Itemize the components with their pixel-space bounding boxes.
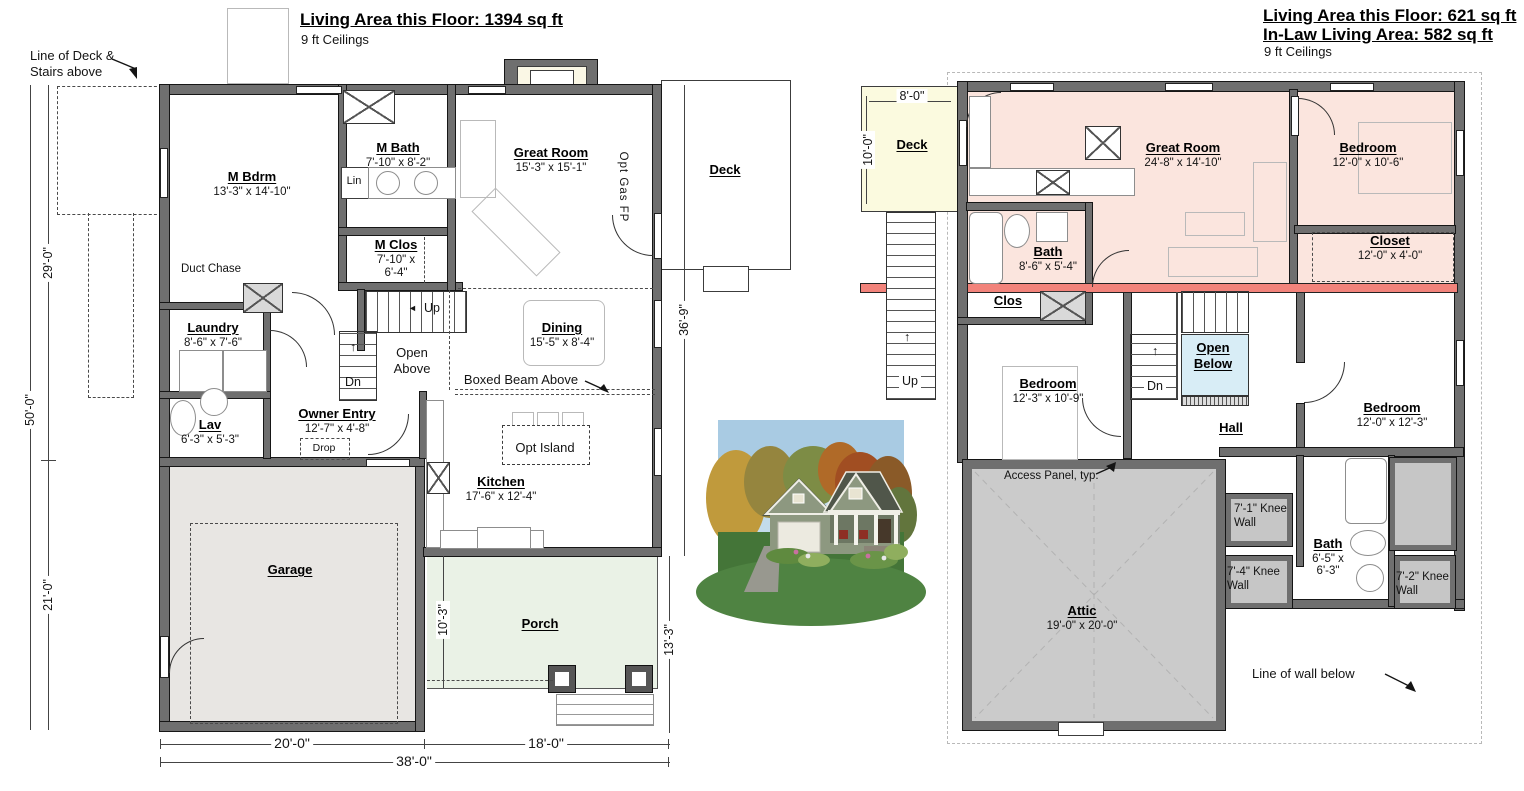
stairs-dn-run [339,331,377,401]
toilet [1350,530,1386,556]
deck-stairs-note: Line of Deck & [30,48,115,63]
toilet [170,400,196,436]
attic-roof-lines [975,472,1213,718]
deck2-label: Deck [896,138,927,152]
opt-island-label: Opt Island [515,441,574,455]
entry-door-gap [366,459,410,467]
stairs-up-label: Up [424,301,440,315]
dim-10: 10'-0" [861,131,875,169]
kitchen-dim: 17'-6" x 12'-4" [466,491,537,503]
owner-entry-dim: 12'-7" x 4'-8" [305,423,369,435]
wall [1297,292,1304,362]
wall [160,85,660,94]
chase-box [1040,291,1086,321]
wall [1086,203,1092,291]
wall [967,203,1092,210]
boxed-beam-line [455,389,655,390]
open-below-label: Open [1196,341,1229,355]
dim-tick [160,739,161,749]
dim-8: 8'-0" [897,89,928,103]
arrow-up-icon: ↑ [904,330,910,344]
stairs-run [1181,291,1249,333]
knee-wall-space [1390,458,1456,550]
bath2-label: Bath [1314,537,1343,551]
porch-steps [556,694,654,726]
sink-basin [376,171,400,195]
wall [1086,290,1092,324]
dining-label: Dining [542,321,582,335]
attic-dim: 19'-0" x 20'-0" [1047,620,1118,632]
attic-access-step [1058,722,1104,736]
sofa [1168,247,1258,277]
bedroom-se-label: Bedroom [1363,401,1420,415]
m-bdrm-label: M Bdrm [228,170,276,184]
m-bdrm-dim: 13'-3" x 14'-10" [213,186,290,198]
knee-wall-3-label: 7'-2" Knee [1396,571,1449,584]
m-clos-dim: 6'-4" [385,267,408,279]
garage-parking-outline [190,523,398,724]
wall [416,458,424,731]
dim-tick [424,739,425,749]
duct-chase-box [243,283,283,313]
leader-arrow-icon [112,55,144,83]
stair-wall-line [1176,292,1178,398]
great-room-dim: 15'-3" x 15'-1" [516,162,587,174]
laundry-dim: 8'-6" x 7'-6" [184,337,242,349]
porch-roof-line [427,680,553,681]
deck1-label: Deck [709,163,740,177]
great-room2-dim: 24'-8" x 14'-10" [1144,157,1221,169]
leader-arrow-icon [585,378,615,396]
m-clos-dim: 7'-10" x [377,254,415,266]
m-bath-dim: 7'-10" x 8'-2" [366,157,430,169]
wall [424,548,661,556]
washer [179,350,223,392]
boxed-beam-label: Boxed Beam Above [461,373,581,387]
door-arc [292,292,335,335]
dim-20: 20'-0" [271,736,313,750]
house-rendering-image [718,420,904,592]
dim-50: 50'-0" [23,391,37,429]
access-panel-note: Access Panel, typ. [1004,470,1099,483]
dryer [223,350,267,392]
closet-label: Closet [1370,234,1410,248]
bath1-label: Bath [1034,245,1063,259]
coffee-table [1185,212,1245,236]
leader-arrow-icon [1096,458,1124,478]
stairs-dn-label: Dn [1144,379,1166,393]
window [1010,83,1054,91]
deck-door-gap [654,213,662,259]
great-room-label: Great Room [514,146,588,160]
knee-wall-2-label: 7'-4" Knee [1227,566,1280,579]
bedroom-se-dim: 12'-0" x 12'-3" [1357,417,1428,429]
lav-dim: 6'-3" x 5'-3" [181,434,239,446]
window [296,86,342,94]
deck-above-outline [57,86,162,215]
floor2-inlaw-area-title: In-Law Living Area: 582 sq ft [1263,25,1493,45]
opt-gas-fp-label: Opt Gas FP [617,152,629,223]
m-clos-label: M Clos [375,238,418,252]
open-above-boundary [449,290,450,390]
deck-door-above [227,8,289,84]
dim-tick [41,460,56,461]
fireplace-insert [530,70,574,85]
range [427,462,450,494]
closet-dim: 12'-0" x 4'-0" [1358,250,1422,262]
great-room2-label: Great Room [1146,141,1220,155]
window [1456,340,1464,386]
boxed-beam-line [455,394,655,395]
media-cabinet [460,120,496,198]
deck1-step [703,266,749,292]
dim-line [160,744,670,745]
arrow-up-icon: ↑ [350,340,356,354]
floor1-living-area-title: Living Area this Floor: 1394 sq ft [300,10,563,30]
window [1456,130,1464,176]
toilet [1004,214,1030,248]
knee-wall-3-label: Wall [1396,585,1418,598]
linen-label: Lin [347,174,362,188]
bath2-dim: 6'-3" [1317,565,1340,577]
dim-tick [668,739,669,749]
drop-zone-label: Drop [313,441,336,455]
arrow-left-icon: ◄ [408,303,417,313]
bath-sink [1356,564,1384,592]
dim-21: 21'-0" [41,576,55,614]
bath2-dim: 6'-5" x [1312,553,1344,565]
range [1085,126,1121,160]
loveseat [1253,162,1287,242]
window [1165,83,1213,91]
m-bath-label: M Bath [376,141,419,155]
attic-label: Attic [1068,604,1097,618]
dim-tick [160,757,161,767]
bath1-dim: 8'-6" x 5'-4" [1019,261,1077,273]
stairs-dn-label: Dn [345,375,361,389]
window [654,428,662,476]
window [1330,83,1374,91]
floor2-living-area-title: Living Area this Floor: 621 sq ft [1263,6,1516,26]
duct-chase-label: Duct Chase [181,263,241,276]
dim-29: 29'-0" [41,244,55,282]
dining-dim: 15'-5" x 8'-4" [530,337,594,349]
wall [1297,456,1303,566]
bedroom-ne-label: Bedroom [1339,141,1396,155]
closet-rod-line [424,237,425,283]
window [654,300,662,348]
stairs-above-outline [88,213,134,398]
lav-sink [200,388,228,416]
bedroom-ne-dim: 12'-0" x 10'-6" [1333,157,1404,169]
railing [1181,396,1249,406]
beam-line [458,288,653,289]
kitchen-sink [477,527,531,549]
floor1-ceiling-note: 9 ft Ceilings [301,32,369,47]
porch-label: Porch [522,617,559,631]
leader-arrow-icon [1385,672,1425,698]
wall [339,283,462,290]
dim-10-3: 10'-3" [436,601,450,639]
floor2-ceiling-note: 9 ft Ceilings [1264,44,1332,59]
deck-stairs-note: Stairs above [30,64,102,79]
shower [343,90,395,124]
dim-36-9: 36'-9" [677,301,691,339]
garage-label: Garage [268,563,313,577]
porch-post [626,666,652,692]
open-above-label: Above [394,362,431,376]
dishwasher [1036,170,1070,195]
owner-entry-label: Owner Entry [298,407,375,421]
sofa [471,187,560,276]
line-wall-below-note: Line of wall below [1252,666,1355,681]
wall [339,228,455,235]
knee-wall-1-label: 7'-1" Knee [1234,503,1287,516]
window [160,148,168,198]
bedroom-w-label: Bedroom [1019,377,1076,391]
clos-label: Clos [994,294,1022,308]
lav-label: Lav [199,418,221,432]
garage-door-gap [160,636,169,678]
sink-basin [414,171,438,195]
stairs-up-label: Up [899,374,921,388]
dim-18: 18'-0" [525,736,567,750]
bathtub [1345,458,1387,524]
porch-post [549,666,575,692]
arrow-up-icon: ↑ [1152,344,1158,358]
floor-plan-sheet: Living Area this Floor: 1394 sq ft 9 ft … [0,0,1524,791]
exterior-stairs [886,212,936,400]
bath-sink [1036,212,1068,242]
kitchen2-counter [969,96,991,168]
dim-13-3: 13'-3" [662,621,676,659]
dim-38: 38'-0" [393,754,435,768]
open-above-label: Open [396,346,428,360]
door-arc [270,330,307,367]
knee-wall-2-label: Wall [1227,580,1249,593]
bathtub [969,212,1003,284]
knee-wall-1-label: Wall [1234,517,1256,530]
kitchen-label: Kitchen [477,475,525,489]
hall-label: Hall [1219,421,1243,435]
laundry-label: Laundry [187,321,238,335]
wall [1220,448,1463,456]
dim-tick [668,757,669,767]
window [468,86,506,94]
bedroom-w-dim: 12'-3" x 10'-9" [1013,393,1084,405]
open-below-label: Below [1194,357,1232,371]
